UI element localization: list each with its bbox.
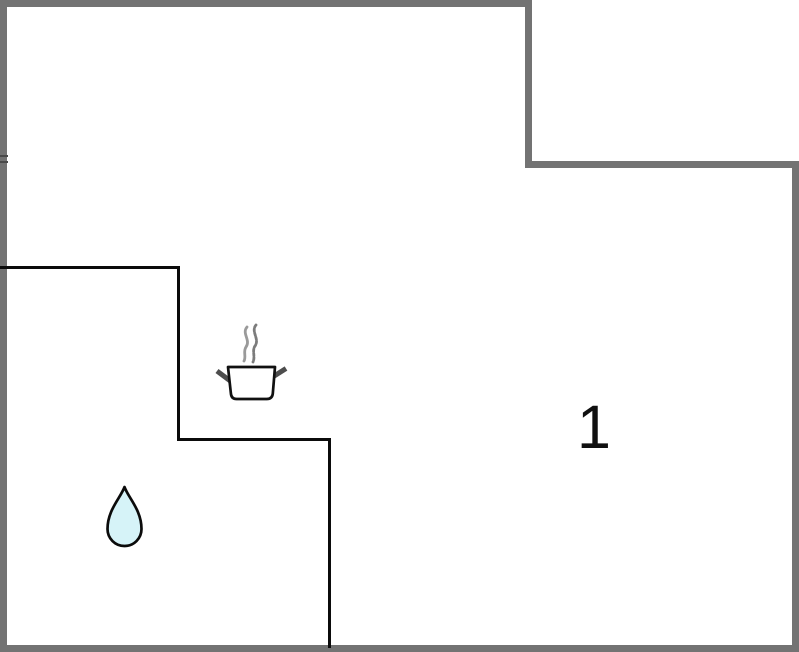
floorplan-canvas: 1 [0, 0, 799, 652]
water-drop-shape [108, 487, 142, 546]
outer-wall-right [792, 161, 799, 652]
pot-body [228, 367, 275, 399]
outer-wall-bottom [0, 645, 799, 652]
water-drop-icon [104, 483, 150, 553]
steam-line-right [253, 325, 257, 362]
wall-joint-mark [0, 161, 8, 163]
cooking-pot-icon [208, 320, 292, 404]
outer-wall-top [0, 0, 532, 7]
outer-wall-left [0, 0, 7, 652]
steam-line-left [244, 327, 248, 361]
inner-wall-horizontal-lower [177, 438, 331, 441]
inner-wall-vertical-lower [328, 438, 331, 648]
wall-joint-mark [0, 155, 8, 157]
room-label: 1 [559, 391, 629, 463]
inner-wall-vertical-upper [177, 266, 180, 441]
outer-wall-step-vertical [525, 0, 532, 168]
inner-wall-horizontal-upper [0, 266, 180, 269]
outer-wall-step-horizontal [525, 161, 799, 168]
